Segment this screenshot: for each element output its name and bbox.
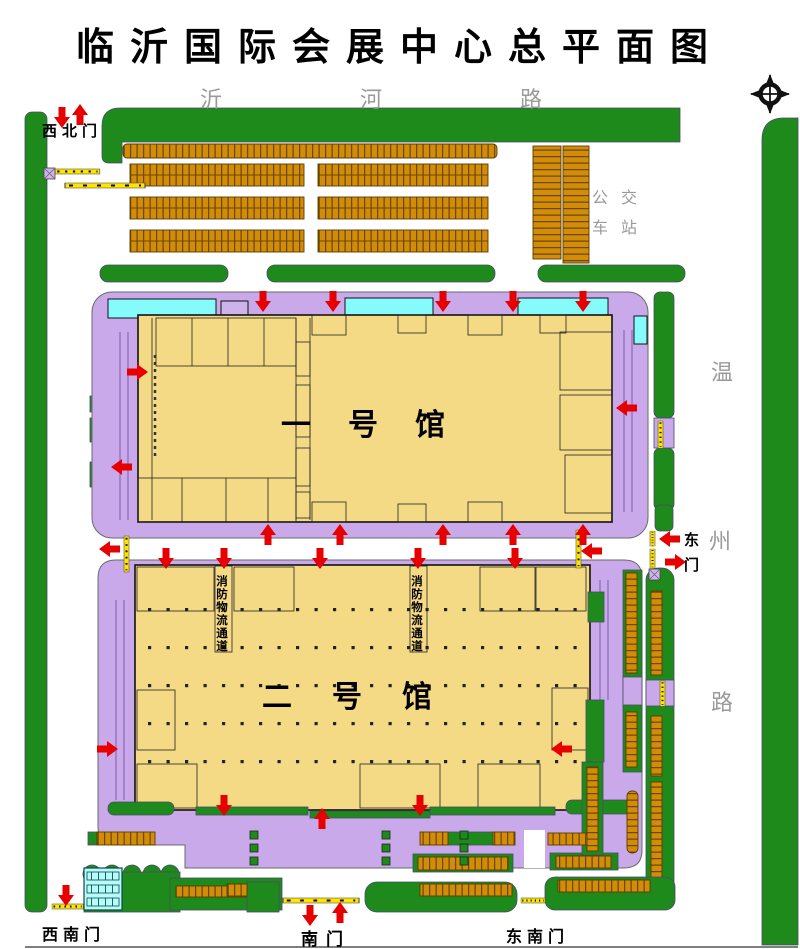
arrow-east-in: [659, 531, 680, 547]
barrier-northwest-1: [55, 169, 100, 174]
hall2-label: 二号馆: [262, 672, 472, 716]
page-title: 临沂国际会展中心总平面图: [0, 16, 800, 71]
southwest-pavilion: [84, 868, 122, 910]
barrier-east-gate-1: [650, 531, 655, 546]
site-plan: 临沂国际会展中心总平面图 沂河路 温 州 路 公交车站 西北门 东门 一号馆 二…: [0, 0, 800, 949]
arrow-south-in: [302, 905, 318, 926]
road-label-east-char3: 路: [711, 685, 733, 717]
arrow-southwest: [58, 885, 74, 906]
compass-icon: [750, 74, 790, 114]
gate-label-northwest: 西北门: [42, 120, 102, 141]
gate-label-south: 南门: [301, 925, 351, 949]
site-map-canvas: [0, 0, 800, 949]
fire-lane-label-east: 消防物流通道: [409, 575, 425, 659]
parking-row: [130, 164, 488, 252]
barrier-east-gate-2: [650, 549, 655, 568]
fire-lane-label-west: 消防物流通道: [214, 575, 230, 659]
road-label-east-char1: 温: [711, 355, 733, 387]
barrier-southwest-gate: [52, 904, 83, 909]
bus-station-parking: [533, 146, 589, 263]
east-road-belt: [762, 118, 798, 945]
barrier-southeast-gate: [521, 898, 545, 903]
barrier-south-gate: [283, 898, 359, 903]
bus-station-label: 公交车站: [592, 183, 658, 243]
road-label-east-char2: 州: [709, 524, 731, 556]
hall1-label: 一号馆: [281, 400, 482, 444]
arrow-south-out: [332, 902, 348, 923]
gate-label-southwest: 西南门: [42, 921, 105, 945]
barrier-west: [124, 536, 129, 572]
road-label-north: 沂河路: [200, 82, 680, 114]
gate-label-southeast: 东南门: [506, 923, 569, 947]
barrier-northwest-2: [65, 183, 145, 188]
barrier-east-band-north: [658, 421, 663, 448]
gate-label-east: 东门: [684, 528, 702, 578]
arrow-east-out: [665, 554, 686, 570]
west-road-belt: [25, 112, 47, 912]
barrier-east-band-south: [660, 681, 665, 706]
north-parking-lot: [123, 144, 589, 263]
service-road: [524, 830, 545, 868]
